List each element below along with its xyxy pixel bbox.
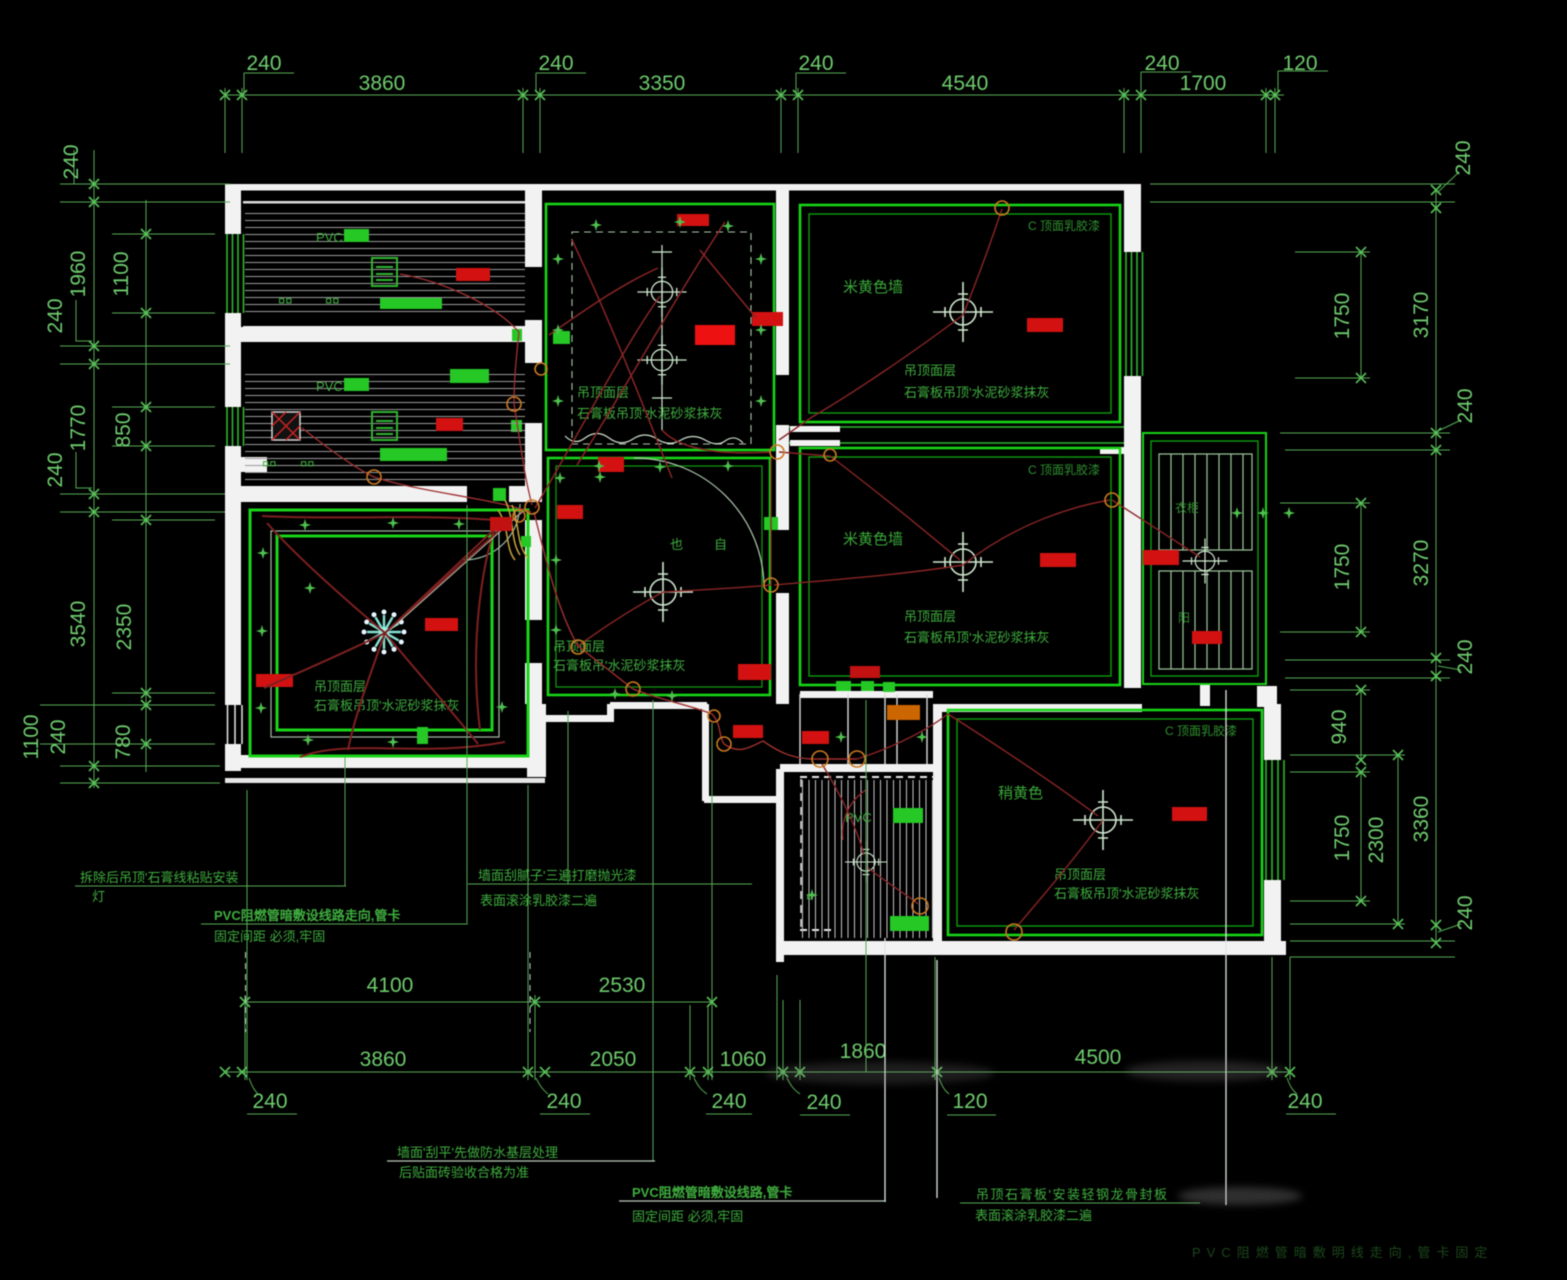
svg-text:固定间距 必须,牢固: 固定间距 必须,牢固 <box>214 929 325 944</box>
svg-text:稍黄色: 稍黄色 <box>998 785 1043 802</box>
svg-text:吊顶面层: 吊顶面层 <box>904 363 956 378</box>
svg-text:C 顶面乳胶漆: C 顶面乳胶漆 <box>1028 462 1100 477</box>
svg-text:¤¤: ¤¤ <box>300 456 314 471</box>
svg-text:阳: 阳 <box>1178 611 1190 625</box>
svg-text:拆除后吊顶'石膏线粘贴安装: 拆除后吊顶'石膏线粘贴安装 <box>80 870 238 885</box>
svg-text:1960: 1960 <box>67 251 90 298</box>
svg-text:2350: 2350 <box>113 604 136 651</box>
svg-text:3270: 3270 <box>1410 540 1433 587</box>
svg-text:3360: 3360 <box>1410 796 1433 843</box>
svg-text:C 顶面乳胶漆: C 顶面乳胶漆 <box>1028 218 1100 233</box>
svg-text:¤¤: ¤¤ <box>325 293 339 308</box>
svg-text:1770: 1770 <box>67 405 90 452</box>
svg-text:表面滚涂乳胶漆二遍: 表面滚涂乳胶漆二遍 <box>975 1208 1092 1223</box>
svg-text:石膏板吊顶'水泥砂浆抹灰: 石膏板吊顶'水泥砂浆抹灰 <box>314 698 459 713</box>
svg-text:石膏板吊顶'水泥砂浆抹灰: 石膏板吊顶'水泥砂浆抹灰 <box>577 406 722 421</box>
svg-text:240: 240 <box>1287 1090 1322 1113</box>
svg-text:240: 240 <box>711 1090 746 1113</box>
svg-text:2530: 2530 <box>599 974 646 997</box>
svg-text:2050: 2050 <box>590 1048 637 1071</box>
svg-text:PVC: PVC <box>316 379 343 394</box>
svg-text:PVC: PVC <box>316 230 343 245</box>
svg-text:衣柜: 衣柜 <box>1175 500 1199 515</box>
svg-text:240: 240 <box>246 52 281 75</box>
svg-text:240: 240 <box>806 1091 841 1114</box>
svg-text:240: 240 <box>1452 140 1475 175</box>
svg-text:4540: 4540 <box>942 72 989 95</box>
svg-text:240: 240 <box>60 144 83 179</box>
svg-text:吊顶面层: 吊顶面层 <box>904 609 956 624</box>
svg-text:后贴面砖验收合格为准: 后贴面砖验收合格为准 <box>399 1165 529 1180</box>
svg-text:240: 240 <box>538 52 573 75</box>
svg-text:吊顶石膏板'安装轻钢龙骨封板: 吊顶石膏板'安装轻钢龙骨封板 <box>976 1187 1168 1202</box>
svg-text:PVC阻燃管暗敷设线路,管卡: PVC阻燃管暗敷设线路,管卡 <box>632 1185 792 1200</box>
svg-text:1860: 1860 <box>840 1040 887 1063</box>
svg-text:自: 自 <box>714 537 727 552</box>
svg-text:850: 850 <box>112 412 135 447</box>
svg-text:石膏板吊'水泥砂浆抹灰: 石膏板吊'水泥砂浆抹灰 <box>553 658 685 673</box>
svg-text:240: 240 <box>44 298 67 333</box>
svg-text:3540: 3540 <box>67 601 90 648</box>
svg-text:4500: 4500 <box>1075 1046 1122 1069</box>
svg-text:米黄色墙: 米黄色墙 <box>843 279 903 296</box>
svg-text:240: 240 <box>252 1090 287 1113</box>
svg-text:1750: 1750 <box>1331 815 1354 862</box>
svg-text:灯: 灯 <box>92 889 105 904</box>
svg-text:240: 240 <box>1454 895 1477 930</box>
svg-text:石膏板吊顶'水泥砂浆抹灰: 石膏板吊顶'水泥砂浆抹灰 <box>904 385 1049 400</box>
svg-text:2300: 2300 <box>1365 817 1388 864</box>
svg-text:1700: 1700 <box>1180 72 1227 95</box>
svg-text:墙面'刮平'先做防水基层处理: 墙面'刮平'先做防水基层处理 <box>397 1145 558 1160</box>
svg-text:PVC阻燃管暗敷明线走向,管卡固定: PVC阻燃管暗敷明线走向,管卡固定 <box>1192 1245 1493 1260</box>
svg-text:吊顶面层: 吊顶面层 <box>314 679 366 694</box>
svg-text:1060: 1060 <box>720 1048 767 1071</box>
svg-text:4100: 4100 <box>367 974 414 997</box>
svg-text:¤¤: ¤¤ <box>278 293 292 308</box>
svg-text:PVC: PVC <box>845 810 872 825</box>
svg-text:石膏板吊顶'水泥砂浆抹灰: 石膏板吊顶'水泥砂浆抹灰 <box>1054 886 1199 901</box>
svg-text:表面滚涂乳胶漆二遍: 表面滚涂乳胶漆二遍 <box>480 893 597 908</box>
svg-text:240: 240 <box>798 52 833 75</box>
svg-text:3860: 3860 <box>360 1048 407 1071</box>
svg-text:也: 也 <box>670 537 683 552</box>
svg-text:1100: 1100 <box>110 251 133 296</box>
svg-text:3860: 3860 <box>359 72 406 95</box>
svg-text:240: 240 <box>1454 639 1477 674</box>
svg-text:3350: 3350 <box>639 72 686 95</box>
svg-text:固定间距 必须,牢固: 固定间距 必须,牢固 <box>632 1209 743 1224</box>
svg-text:240: 240 <box>1454 388 1477 423</box>
svg-text:120: 120 <box>1282 52 1317 75</box>
svg-text:石膏板吊顶'水泥砂浆抹灰: 石膏板吊顶'水泥砂浆抹灰 <box>904 630 1049 645</box>
svg-text:1100: 1100 <box>20 714 43 759</box>
svg-text:3170: 3170 <box>1410 292 1433 339</box>
svg-text:1750: 1750 <box>1331 544 1354 591</box>
svg-text:240: 240 <box>1144 52 1179 75</box>
svg-text:240: 240 <box>44 452 67 487</box>
svg-text:240: 240 <box>47 719 70 754</box>
svg-text:240: 240 <box>546 1090 581 1113</box>
svg-text:吊顶面层: 吊顶面层 <box>1054 867 1106 882</box>
svg-text:米黄色墙: 米黄色墙 <box>843 531 903 548</box>
svg-text:780: 780 <box>112 724 135 759</box>
svg-text:墙面刮腻子'三遍打磨抛光漆: 墙面刮腻子'三遍打磨抛光漆 <box>478 868 636 883</box>
svg-text:940: 940 <box>1328 709 1351 744</box>
svg-text:¤¤: ¤¤ <box>262 456 276 471</box>
svg-text:120: 120 <box>952 1090 987 1113</box>
svg-text:1750: 1750 <box>1331 293 1354 340</box>
svg-text:PVC阻燃管暗敷设线路走向,管卡: PVC阻燃管暗敷设线路走向,管卡 <box>214 908 400 923</box>
